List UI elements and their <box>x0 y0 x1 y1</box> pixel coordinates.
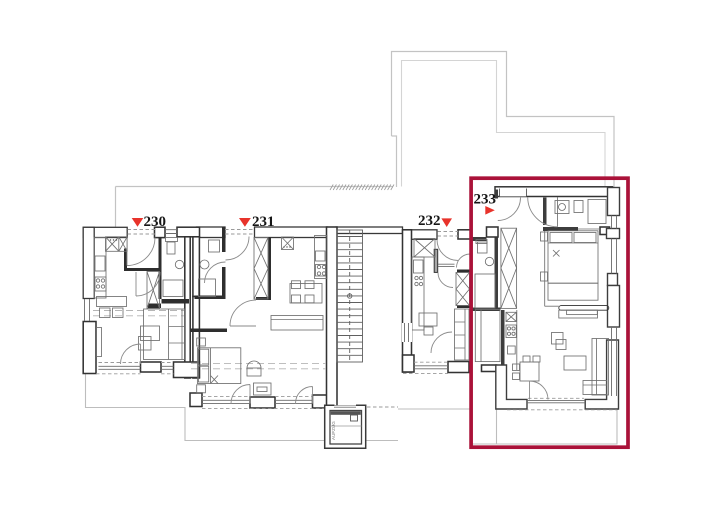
svg-text:233: 233 <box>474 192 497 208</box>
svg-text:230: 230 <box>144 214 167 230</box>
svg-text:231: 231 <box>252 214 275 230</box>
svg-text:AUFZUG: AUFZUG <box>331 421 336 440</box>
svg-text:232: 232 <box>418 213 441 229</box>
